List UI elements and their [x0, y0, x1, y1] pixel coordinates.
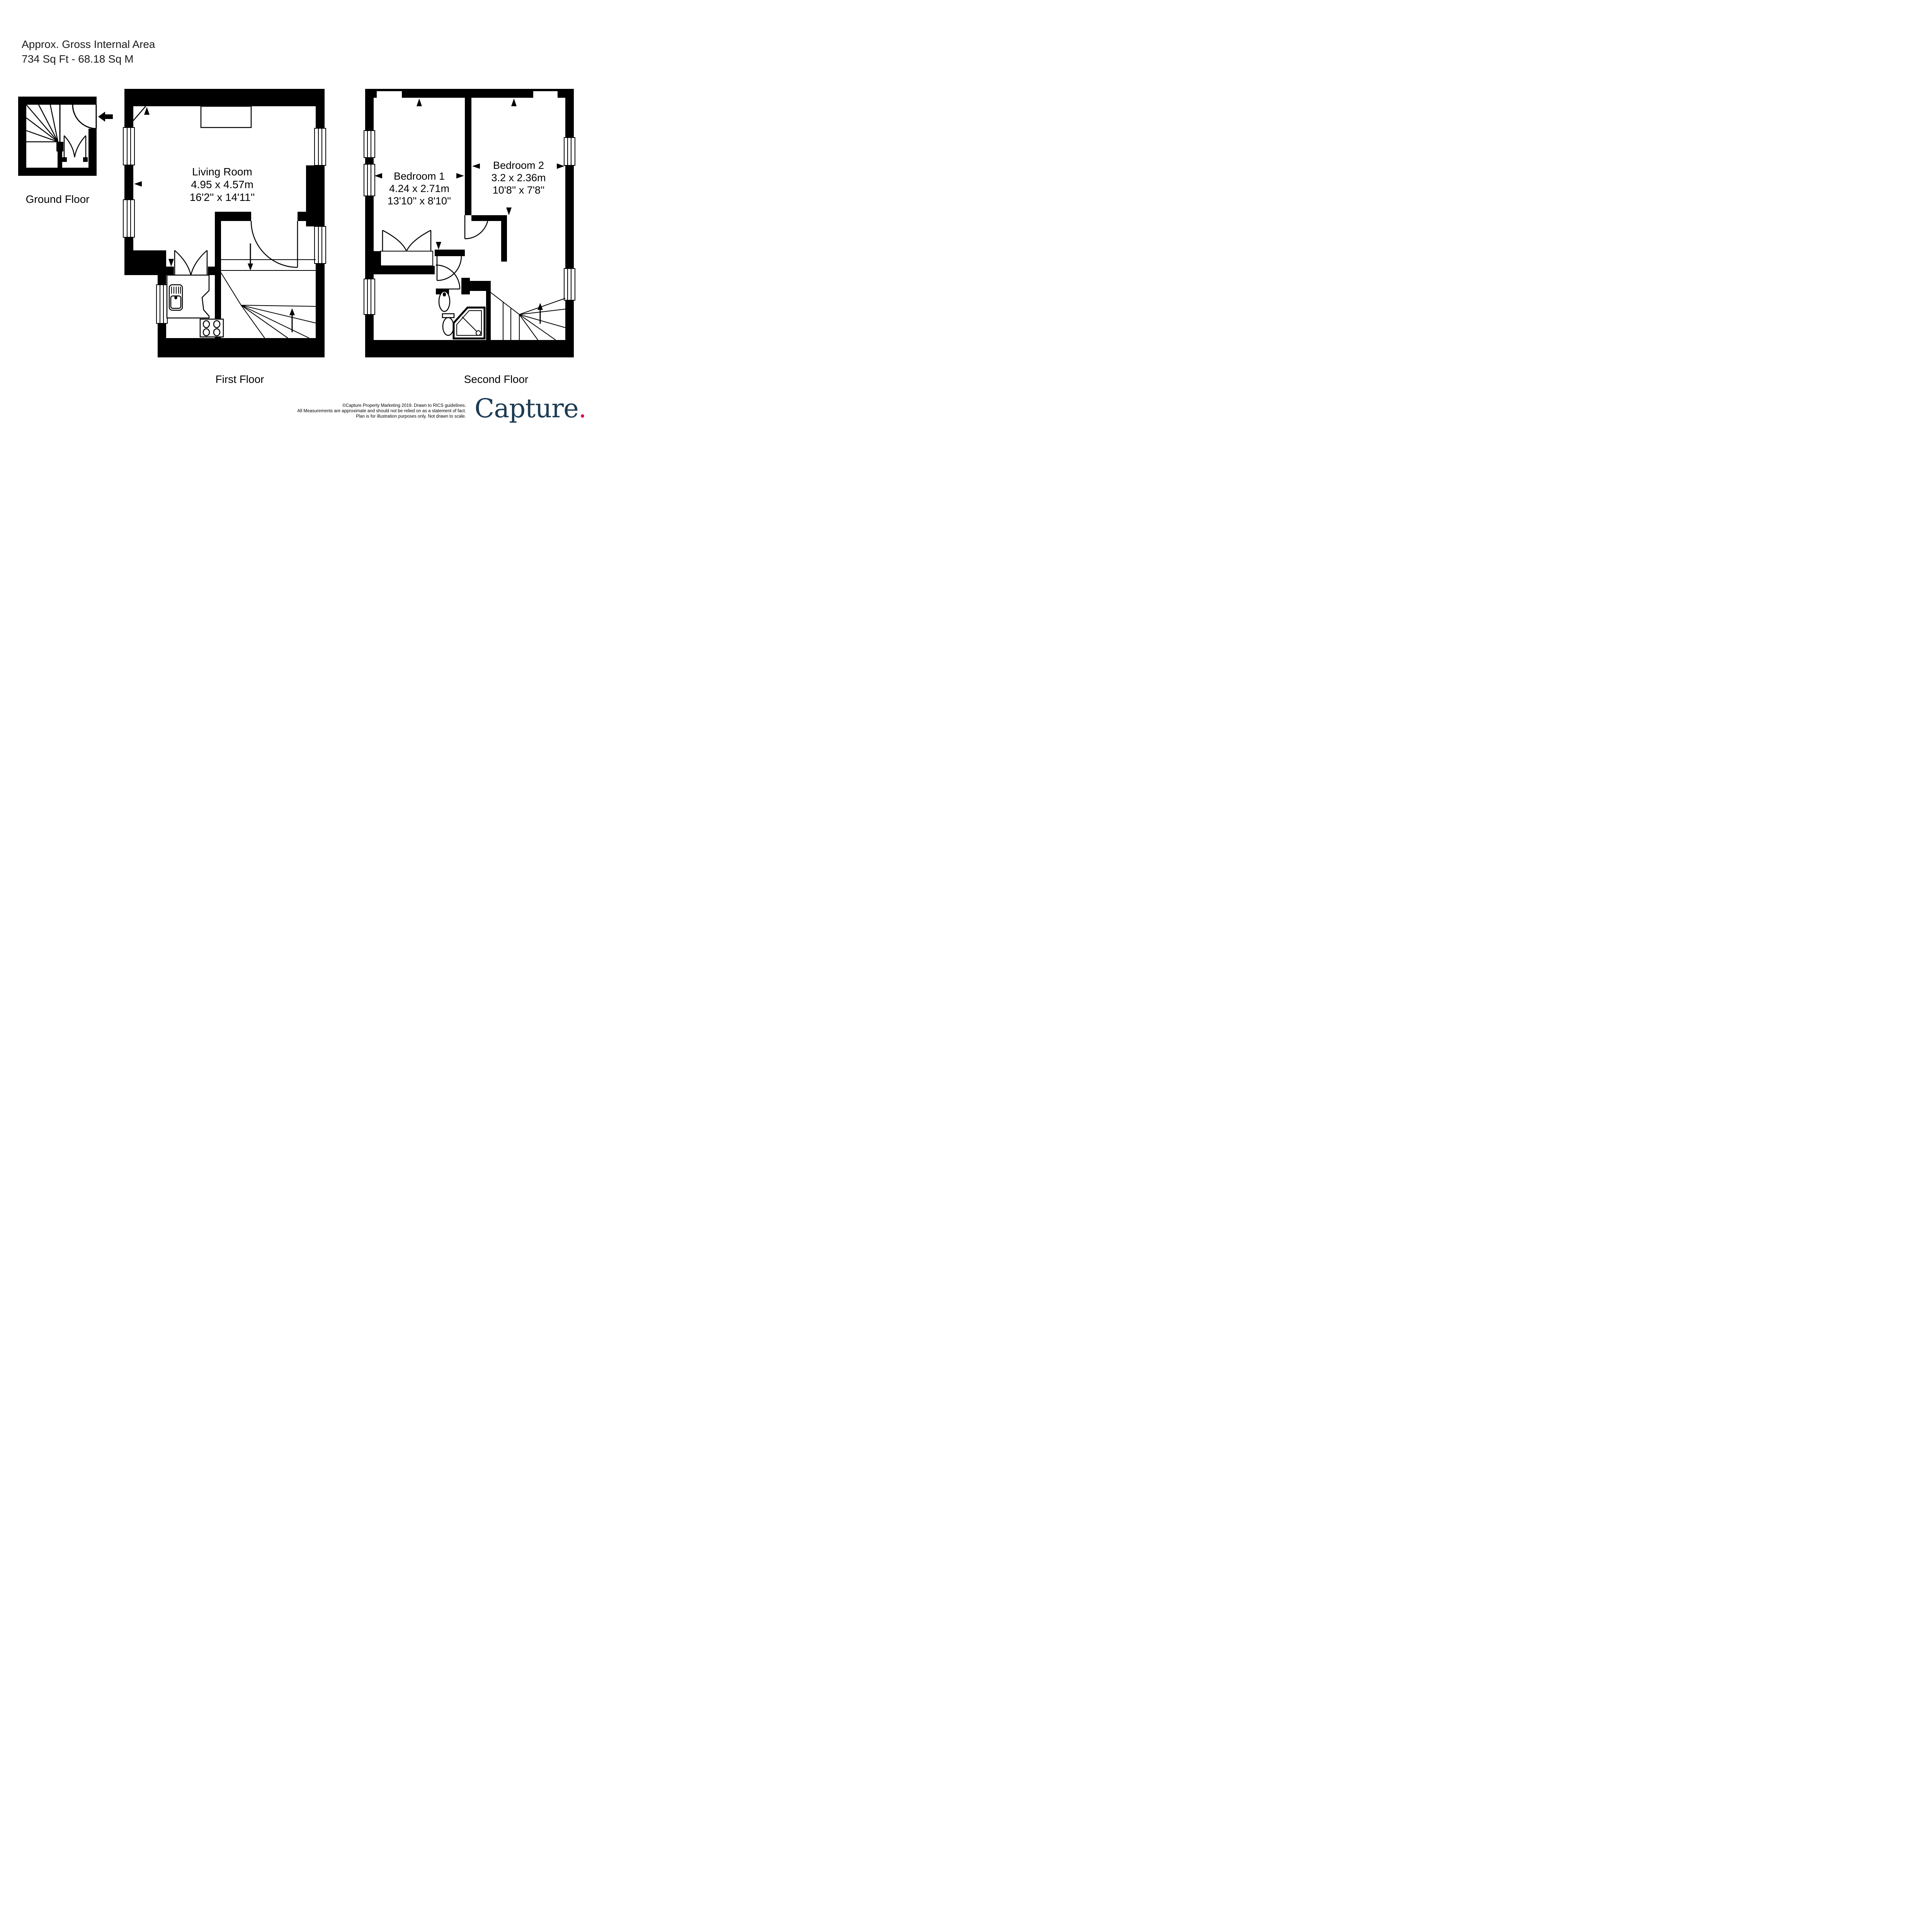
- room-name: Living Room: [166, 165, 278, 178]
- kitchen-double-doors: [175, 250, 207, 275]
- capture-logo: Capture.: [474, 393, 594, 422]
- chimney-breast: [201, 106, 251, 128]
- wardrobe: [381, 230, 433, 266]
- dim-arrow-left: [134, 181, 142, 187]
- room-name: Bedroom 1: [369, 170, 469, 182]
- window: [315, 128, 326, 165]
- second-floor-plan: [364, 89, 575, 357]
- dim-arrow-down: [506, 207, 512, 215]
- ground-floor-label: Ground Floor: [17, 193, 98, 206]
- second-floor-stairs: [491, 292, 565, 340]
- entrance-arrow-icon: [98, 112, 113, 122]
- sink: [169, 285, 182, 310]
- chamfer-wall: [133, 106, 146, 121]
- kitchen-window: [156, 285, 167, 323]
- window: [315, 226, 326, 264]
- stair-down-arrow: [248, 243, 253, 270]
- bedroom1-door: [437, 256, 461, 281]
- capture-logo-dot: .: [578, 393, 586, 423]
- window: [564, 138, 575, 165]
- room-size-imperial: 10'8'' x 7'8'': [472, 184, 565, 196]
- title-line-2: 734 Sq Ft - 68.18 Sq M: [22, 52, 207, 66]
- chimney-recess: [533, 91, 558, 98]
- second-floor-label: Second Floor: [456, 373, 536, 386]
- first-floor-plan: [123, 89, 326, 357]
- dim-arrow-up: [144, 107, 150, 115]
- room-size-metric: 4.95 x 4.57m: [166, 178, 278, 191]
- ground-divider-lower: [58, 142, 62, 168]
- chimney-recess: [377, 91, 402, 98]
- disclaimer-line-1: ©Capture Property Marketing 2019. Drawn …: [247, 403, 466, 408]
- shower: [454, 308, 485, 338]
- room-size-metric: 3.2 x 2.36m: [472, 172, 565, 184]
- basin: [439, 291, 450, 311]
- window: [123, 200, 134, 237]
- capture-logo-text: Capture: [474, 393, 578, 423]
- disclaimer-line-3: Plan is for illustration purposes only. …: [247, 414, 466, 419]
- bedroom1-label: Bedroom 1 4.24 x 2.71m 13'10'' x 8'10'': [369, 170, 469, 207]
- entrance-door-gap: [88, 105, 97, 129]
- room-size-imperial: 16'2'' x 14'11'': [166, 191, 278, 204]
- dim-arrow-up: [417, 99, 422, 106]
- living-room-door: [251, 221, 298, 267]
- dim-arrow-up: [511, 99, 517, 106]
- window: [123, 128, 134, 165]
- room-size-metric: 4.24 x 2.71m: [369, 182, 469, 195]
- room-size-imperial: 13'10'' x 8'10'': [369, 195, 469, 207]
- hob: [200, 319, 223, 337]
- ground-interior: [26, 105, 88, 168]
- disclaimer-line-2: All Measurements are approximate and sho…: [247, 408, 466, 414]
- bathroom-window: [364, 279, 375, 315]
- disclaimer: ©Capture Property Marketing 2019. Drawn …: [247, 403, 466, 419]
- dim-arrow-down: [168, 259, 174, 267]
- bedroom2-label: Bedroom 2 3.2 x 2.36m 10'8'' x 7'8'': [472, 159, 565, 196]
- ground-floor-plan: [18, 97, 113, 176]
- toilet: [442, 314, 454, 335]
- window: [364, 131, 375, 158]
- first-floor-walls: [124, 89, 325, 357]
- room-name: Bedroom 2: [472, 159, 565, 172]
- gross-internal-area-title: Approx. Gross Internal Area 734 Sq Ft - …: [22, 37, 207, 66]
- window: [564, 269, 575, 300]
- bathroom-door: [436, 265, 460, 289]
- title-line-1: Approx. Gross Internal Area: [22, 37, 207, 52]
- dim-arrow-down: [436, 242, 441, 250]
- living-room-label: Living Room 4.95 x 4.57m 16'2'' x 14'11'…: [166, 165, 278, 204]
- first-floor-label: First Floor: [200, 373, 279, 386]
- first-floor-stairs: [221, 260, 316, 338]
